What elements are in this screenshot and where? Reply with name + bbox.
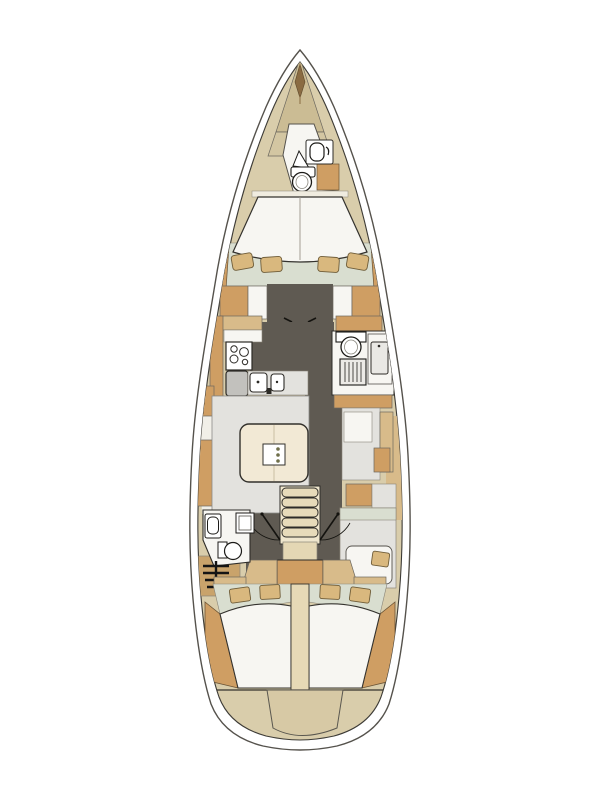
pillow bbox=[229, 587, 251, 604]
aft-cabin-starboard bbox=[309, 584, 395, 688]
stove-icon bbox=[226, 342, 252, 370]
shower-grate-icon bbox=[340, 359, 366, 385]
pillow bbox=[320, 584, 341, 599]
passage-wood-port bbox=[220, 286, 248, 320]
aft-cabin-port bbox=[205, 584, 291, 688]
galley-back-counter bbox=[224, 330, 262, 342]
pillow bbox=[349, 587, 371, 604]
seat-side bbox=[372, 484, 396, 508]
toilet-icon bbox=[218, 542, 242, 560]
center-bulkhead bbox=[291, 584, 309, 690]
sink-icon bbox=[205, 514, 221, 538]
double-sink-icon bbox=[250, 373, 284, 394]
engine-box bbox=[277, 560, 323, 586]
passage-wood-starboard bbox=[352, 286, 380, 320]
pillow bbox=[260, 584, 281, 599]
passage-floor bbox=[267, 284, 333, 324]
table-center-unit bbox=[263, 444, 285, 465]
desk-top bbox=[344, 412, 372, 442]
passage-panel-port bbox=[248, 286, 267, 319]
floorplan-canvas bbox=[0, 0, 600, 800]
entry-shelf bbox=[340, 508, 396, 520]
berth-headboard bbox=[252, 191, 348, 197]
stair-steps bbox=[282, 488, 318, 537]
desk-wood-block bbox=[374, 448, 390, 472]
seat-cushion bbox=[346, 484, 372, 506]
forward-head-cabinet bbox=[317, 164, 339, 190]
aft-cabins bbox=[205, 577, 395, 690]
cabinet-icon bbox=[236, 513, 254, 533]
sink-icon bbox=[306, 140, 333, 164]
head-wood-trim bbox=[334, 395, 392, 408]
galley-sink-cabinet bbox=[226, 371, 248, 396]
floorplan-page bbox=[0, 0, 600, 800]
transom-locker bbox=[267, 690, 343, 736]
passage-panel-starboard bbox=[333, 286, 352, 319]
head-wood-band bbox=[336, 316, 382, 331]
entry-pillow bbox=[371, 551, 390, 567]
stairs-landing bbox=[283, 542, 317, 560]
galley-wood-band bbox=[220, 316, 262, 330]
